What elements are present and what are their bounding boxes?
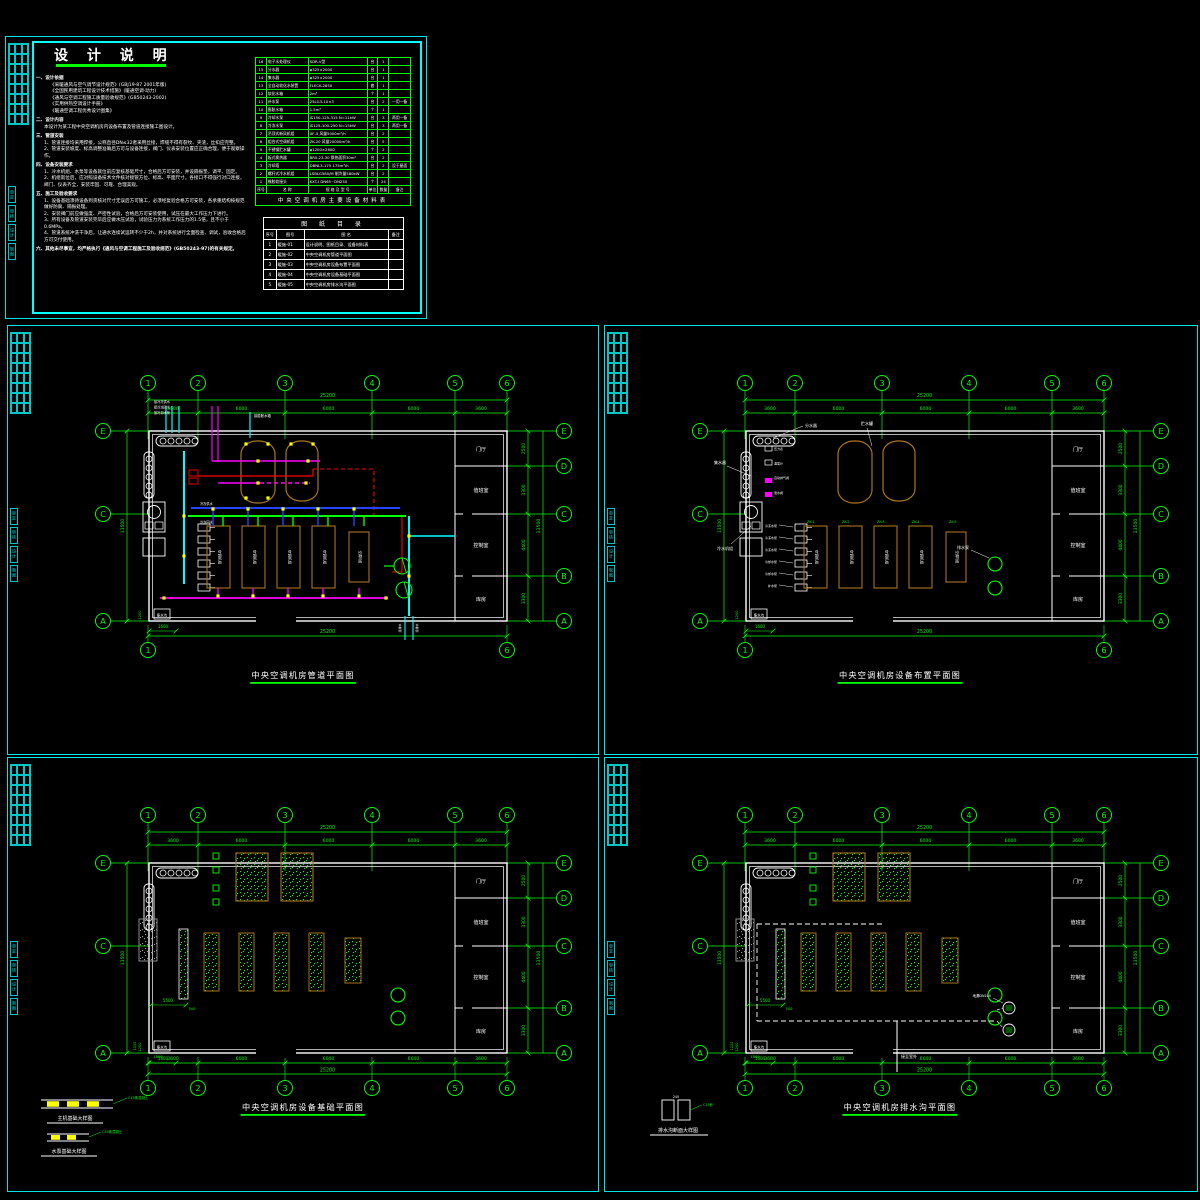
table-cell <box>389 82 411 90</box>
notes-title: 设 计 说 明 <box>54 45 274 65</box>
grid-bubble-label: 1 <box>145 1084 150 1093</box>
pump-base <box>213 899 219 905</box>
collector-port <box>757 438 763 444</box>
notes-line: 本设计为某工程中央空调机房内设备布置及管道连接施工图设计。 <box>36 125 248 132</box>
title-strip-grid <box>8 43 29 125</box>
equipment-material-table: 16电子水处理仪SDR-Ⅴ型台115分水器φ325×2000台114集水器φ32… <box>255 57 411 206</box>
strip-cell <box>24 785 30 795</box>
plan-title-underline <box>250 682 356 684</box>
grid-bubble-label: 5 <box>1049 379 1054 388</box>
dim-label: 3300 <box>1118 1025 1124 1036</box>
grid-bubble-label: 6 <box>1101 646 1106 655</box>
table-cell: 2 <box>378 154 389 162</box>
grid-bubble-label: E <box>1158 427 1163 436</box>
table-cell: 板式换热器 <box>266 154 308 162</box>
strip-cell <box>24 805 30 815</box>
strip-label: 审定 <box>607 508 615 525</box>
chiller-unit <box>740 502 762 532</box>
table-cell: 螺杆式冷水机组 <box>266 170 308 178</box>
table-cell: 冷却水泵 <box>266 114 308 122</box>
table-cell: 2 <box>378 98 389 106</box>
dim-label: 2500 <box>521 875 527 886</box>
grid-bubble-label: C <box>561 942 567 951</box>
table-cell: 14 <box>256 74 267 82</box>
pump-unit <box>795 548 807 555</box>
title-strip-grid <box>10 764 31 846</box>
dim-label: 5500 <box>760 998 771 1003</box>
grid-bubble-label: 1 <box>145 646 150 655</box>
title-strip-grid <box>10 332 31 414</box>
trench-wall <box>678 1100 690 1120</box>
strip-label: 审定 <box>607 941 615 958</box>
grid-bubble-label: 1 <box>145 379 150 388</box>
table-cell: 1 <box>378 90 389 98</box>
strip-cell <box>621 333 627 343</box>
table-cell <box>389 154 411 162</box>
dim-total-label: 25200 <box>917 825 932 831</box>
sump-label: 集水坑 <box>157 613 168 618</box>
grid-bubble-label: D <box>1158 462 1164 471</box>
strip-cell <box>24 383 30 393</box>
table-cell <box>388 250 403 260</box>
dim-total-label: 13500 <box>536 951 542 966</box>
grid-bubble-label: 2 <box>195 379 200 388</box>
valve-mark <box>289 442 292 445</box>
detail-hatch <box>47 1101 59 1107</box>
collector-port <box>773 870 779 876</box>
room-label: 库房 <box>1073 1028 1083 1035</box>
strip-cell <box>22 44 28 54</box>
hot-pipe-fitting <box>189 470 198 476</box>
valve-mark <box>304 481 307 484</box>
grid-bubble-label: 4 <box>369 811 374 820</box>
table-cell <box>389 74 411 82</box>
pump-unit <box>795 536 807 543</box>
dim-label: 3600 <box>167 838 179 844</box>
dim-label: 3600 <box>1072 838 1084 844</box>
table-cell: 暖施-05 <box>276 280 304 290</box>
dim-label: 500 <box>786 1007 794 1011</box>
pump-row-label: 补水泵 <box>768 583 777 588</box>
equip-label: 贮水罐 <box>861 420 873 426</box>
pump-unit <box>198 572 210 579</box>
pump-circle <box>988 581 1002 595</box>
table-cell: 1 <box>378 106 389 114</box>
drawing-list-table: 图 纸 目 录序号图号图 名备注1暖施-01设计说明、图纸目录、设备材料表2暖施… <box>263 217 404 290</box>
grid-bubble-label: A <box>1158 617 1164 626</box>
room-label: 控制室 <box>1070 974 1085 981</box>
dim-label: 3600 <box>167 1056 179 1062</box>
table-cell: 3 <box>256 162 267 170</box>
table-cell: 2 <box>264 250 277 260</box>
sheet-title-strip: 审定审核设计制图 <box>8 43 29 312</box>
grid-bubble-label: A <box>697 617 703 626</box>
strip-cell <box>22 94 28 104</box>
dim-total-label: 25200 <box>917 1068 932 1074</box>
sheet-title-strip: 审定审核设计制图 <box>10 332 31 748</box>
table-cell: 12 <box>256 90 267 98</box>
table-cell: 中央空调机房设备布置平面图 <box>304 260 388 270</box>
strip-cell <box>621 835 627 845</box>
strip-cell <box>22 64 28 74</box>
strip-label: 审核 <box>10 527 18 544</box>
riser-label: 接冷却水管 <box>154 410 170 415</box>
instrument-label: 自动排气阀 <box>774 475 789 480</box>
strip-label: 设计 <box>8 224 16 241</box>
grid-bubble-label: 1 <box>742 646 747 655</box>
detail-note: C15砼 <box>703 1102 714 1107</box>
dim-total-label: 13500 <box>536 519 542 534</box>
grid-bubble-label: 2 <box>195 811 200 820</box>
table-cell: 个 <box>367 146 378 154</box>
plan-title: 中央空调机房设备基础平面图 <box>242 1102 364 1112</box>
main-tag: 冷冻回水 <box>200 520 214 525</box>
grid-bubble-label: 6 <box>504 1084 509 1093</box>
table-cell: 中央空调机房排水沟平面图 <box>304 280 388 290</box>
strip-cell <box>24 393 30 403</box>
sheet-design-notes: 设 计 说 明 一、设计依据《采暖通风与空气调节设计规范》(GBJ19-87 2… <box>5 36 427 319</box>
drainage-plan-svg: 1234563600600060006000360025200EDCBA2500… <box>605 758 1197 1191</box>
table-cell: XF-5 风量5000m³/h <box>308 130 367 138</box>
table-cell: 5 <box>264 280 277 290</box>
ahu-label: 空调机组 <box>850 550 855 565</box>
leader-line <box>779 549 793 551</box>
table-cell: 台 <box>367 98 378 106</box>
riser-label: 接冷冻回水 <box>154 404 171 409</box>
table-header-cell: 图 名 <box>304 230 388 240</box>
table-cell: 冷却塔 <box>266 162 308 170</box>
strip-cell <box>621 785 627 795</box>
grid-bubble-label: A <box>697 1049 703 1058</box>
ahu-label: 空调机组 <box>253 550 258 565</box>
dim-total-label: 25200 <box>320 393 335 399</box>
dim-label: 1600 <box>755 624 766 629</box>
table-cell: 套 <box>367 82 378 90</box>
table-cell: 一用一备 <box>389 98 411 106</box>
dim-label: 3300 <box>521 916 527 927</box>
dim-label: 3300 <box>1118 916 1124 927</box>
instrument-label: 泄水阀 <box>774 490 783 495</box>
room-label: 值班室 <box>473 487 488 494</box>
strip-label: 制图 <box>607 565 615 582</box>
pump-circle <box>988 557 1002 571</box>
dim-label: 3600 <box>1072 1056 1084 1062</box>
pump-row-label: 冷冻水泵 <box>765 523 777 528</box>
sheet-foundation-plan: 1234563600600060006000360025200EDCBA2500… <box>7 757 599 1192</box>
tank-foundation <box>281 853 313 901</box>
notes-line: 《暖通空调工程优秀设计图集》 <box>36 109 248 116</box>
table-cell: IS150-125-315 N=11kW <box>308 114 367 122</box>
leader-line <box>971 550 989 558</box>
valve-mark <box>281 507 284 510</box>
grid-bubble-label: 5 <box>1049 1084 1054 1093</box>
ahu-foundation <box>801 933 816 991</box>
grid-bubble-label: A <box>100 617 106 626</box>
door-opening <box>256 1049 296 1058</box>
grid-bubble-label: D <box>1158 894 1164 903</box>
table-cell: 2 <box>256 170 267 178</box>
room-label: 值班室 <box>473 919 488 926</box>
table-cell: 台 <box>367 74 378 82</box>
main-tag: 冷冻供水 <box>200 501 214 506</box>
strip-label: 审定 <box>10 941 18 958</box>
table-cell: 中央空调机房管道平面图 <box>304 250 388 260</box>
grid-bubble-label: C <box>1158 510 1164 519</box>
grid-bubble-label: C <box>1158 942 1164 951</box>
room-label: 库房 <box>476 1028 486 1035</box>
grid-bubble-label: 6 <box>1101 379 1106 388</box>
room-label: 值班室 <box>1070 487 1085 494</box>
grid-bubble-label: A <box>1158 1049 1164 1058</box>
table-cell: 7 <box>256 130 267 138</box>
strip-label: 制图 <box>10 998 18 1015</box>
ahu-tag: ZK-1 <box>807 520 815 524</box>
leader-line <box>690 1105 702 1110</box>
instrument-tag-magenta <box>765 478 772 483</box>
plan-title: 中央空调机房管道平面图 <box>251 670 354 680</box>
strip-cell <box>621 363 627 373</box>
table-cell: 两用一备 <box>389 122 411 130</box>
plan-title: 中央空调机房设备布置平面图 <box>839 670 961 680</box>
collector-port <box>757 870 763 876</box>
hot-pipe-fitting <box>189 478 198 484</box>
detail-note: C15素混凝土 <box>128 1095 149 1100</box>
valve-mark <box>256 459 259 462</box>
table-cell: 台 <box>367 66 378 74</box>
dim-label: 2500 <box>521 443 527 454</box>
table-cell <box>389 138 411 146</box>
table-cell <box>389 178 411 186</box>
storage-tank <box>241 441 275 503</box>
leader-line <box>779 525 793 527</box>
pump-row-label: 冷冻水泵 <box>765 547 777 552</box>
table-header-cell: 序号 <box>256 186 267 194</box>
strip-cell <box>24 765 30 775</box>
dim-label: 6000 <box>1005 838 1017 844</box>
pump-circle <box>391 988 405 1002</box>
dim-label: 6000 <box>323 838 335 844</box>
table-cell: BR0.23-30 换热面积30m² <box>308 154 367 162</box>
ahu-foundation <box>239 933 254 991</box>
strip-cell <box>24 825 30 835</box>
dim-total-label: 13500 <box>717 951 723 965</box>
table-header-cell: 备注 <box>389 186 411 194</box>
sheet-title-strip: 审定审核设计制图 <box>607 764 628 1185</box>
strip-cell <box>621 815 627 825</box>
trench-detail: 240C15砼排水沟断面大样图 <box>650 1095 714 1136</box>
equip-label: 分水器 <box>805 422 817 428</box>
dim-label: 1800 <box>750 1054 760 1059</box>
grid-bubble-label: 2 <box>792 811 797 820</box>
door-opening <box>256 617 296 626</box>
grid-bubble-label: 4 <box>966 1084 971 1093</box>
dim-total-label: 25200 <box>320 1068 335 1074</box>
leader-line <box>779 561 793 563</box>
valve-mark <box>244 442 247 445</box>
table-cell: 集水器 <box>266 74 308 82</box>
grid-bubble-label: A <box>561 617 567 626</box>
equipment-plan-svg: 1234563600600060006000360025200EDCBA2500… <box>605 326 1197 754</box>
dim-label: 3600 <box>475 406 487 412</box>
dim-total-label: 13500 <box>120 951 126 965</box>
dim-label: 2500 <box>1118 443 1124 454</box>
grid-bubble-label: B <box>1158 1004 1164 1013</box>
dim-label: 1200 <box>133 1042 137 1051</box>
dim-label: 6000 <box>236 406 248 412</box>
strip-cell <box>24 353 30 363</box>
grid-bubble-label: B <box>561 1004 567 1013</box>
equipment-table-caption: 中央空调机房主要设备材料表 <box>256 194 411 206</box>
dim-label: 3300 <box>521 593 527 604</box>
strip-cell <box>621 795 627 805</box>
dim-label: 6000 <box>833 1056 845 1062</box>
dim-total-label: 13500 <box>717 519 723 533</box>
strip-cell <box>621 403 627 413</box>
dim-label: 1200 <box>730 1042 734 1051</box>
table-cell: DBNL3-175 175m³/h <box>308 162 367 170</box>
grid-bubble-label: E <box>697 859 702 868</box>
dim-label: 6000 <box>920 1056 932 1062</box>
table-cell <box>389 58 411 66</box>
valve-mark <box>407 534 410 537</box>
dim-label: 6000 <box>408 406 420 412</box>
strip-cell <box>621 383 627 393</box>
table-cell: 6 <box>256 138 267 146</box>
piping-plan-svg: 1234563600600060006000360025200EDCBA2500… <box>8 326 598 754</box>
table-cell: 2 <box>378 146 389 154</box>
strip-label: 设计 <box>10 979 18 996</box>
table-cell <box>389 90 411 98</box>
collector-port <box>773 438 779 444</box>
grid-bubble-label: 2 <box>792 379 797 388</box>
table-header-cell: 备注 <box>388 230 403 240</box>
title-strip-grid <box>607 332 628 414</box>
strip-cell <box>24 333 30 343</box>
sheet-title-strip: 审定审核设计制图 <box>10 764 31 1185</box>
table-cell: 个 <box>367 178 378 186</box>
grid-bubble-label: E <box>697 427 702 436</box>
valve-mark <box>182 554 185 557</box>
room-label: 库房 <box>476 596 486 603</box>
collector-port <box>184 438 190 444</box>
valve-mark <box>266 496 269 499</box>
table-cell: 全自动软化水装置 <box>266 82 308 90</box>
table-cell: 设于屋面 <box>389 162 411 170</box>
plan-title-underline <box>241 1114 366 1116</box>
table-cell: 15 <box>256 66 267 74</box>
dim-label: 1200 <box>138 610 142 620</box>
strip-label: 制图 <box>10 565 18 582</box>
grid-bubble-label: 5 <box>1049 811 1054 820</box>
dim-label: 3600 <box>1072 406 1084 412</box>
outlet-label: 接至室外 <box>901 1053 917 1059</box>
grid-bubble-label: B <box>561 572 567 581</box>
plan-title: 中央空调机房排水沟平面图 <box>844 1102 957 1112</box>
strip-cell <box>22 114 28 124</box>
grid-bubble-label: 2 <box>195 1084 200 1093</box>
grid-bubble-label: C <box>697 510 703 519</box>
strip-label: 设计 <box>607 979 615 996</box>
pump-unit <box>795 524 807 531</box>
detail-title: 水泵基础大样图 <box>51 1148 86 1155</box>
plan-title-underline <box>842 1114 957 1116</box>
table-header-cell: 单位 <box>367 186 378 194</box>
drain-label: 接排水 <box>414 623 419 632</box>
sheet-title-strip: 审定审核设计制图 <box>607 332 628 748</box>
table-cell: 1 <box>378 58 389 66</box>
collector-port <box>192 870 198 876</box>
table-cell <box>388 280 403 290</box>
detail-note: C15素混凝土 <box>102 1129 123 1134</box>
ahu-foundation <box>309 933 324 991</box>
ahu-label: 空调机组 <box>218 550 223 565</box>
collector-port <box>176 438 182 444</box>
grid-bubble-label: 3 <box>879 1084 884 1093</box>
table-cell: ZK-20 风量20000m³/h <box>308 138 367 146</box>
dim-label: 3600 <box>764 1056 776 1062</box>
table-cell: 25LG3-10×3 <box>308 98 367 106</box>
room-label: 库房 <box>1073 596 1083 603</box>
grid-bubble-label: 1 <box>742 379 747 388</box>
dim-label: 3600 <box>764 838 776 844</box>
table-cell: φ325×2000 <box>308 66 367 74</box>
detail-title: 主机基础大样图 <box>57 1115 92 1122</box>
table-cell: KXT-Ⅰ DN65~DN250 <box>308 178 367 186</box>
strip-label: 审定 <box>8 186 16 203</box>
leader-line <box>731 526 751 544</box>
grid-bubble-label: 3 <box>282 811 287 820</box>
valve-mark <box>407 574 410 577</box>
ahu-tag: ZK-2 <box>842 520 850 524</box>
table-cell: 不锈钢贮水罐 <box>266 146 308 154</box>
equip-label: 排水泵 <box>957 544 969 550</box>
valve-mark <box>244 496 247 499</box>
valve-mark <box>316 507 319 510</box>
table-cell: 2m³ <box>308 90 367 98</box>
grid-bubble-label: C <box>697 942 703 951</box>
collector-port <box>160 870 166 876</box>
valve-mark <box>306 459 309 462</box>
drain-label: 地漏DN100 <box>973 993 991 998</box>
room-label: 控制室 <box>473 974 488 981</box>
ahu-label: 空调机组 <box>920 550 925 565</box>
ahu-label: 空调机组 <box>955 551 960 565</box>
detail-hatch <box>67 1101 79 1107</box>
grid-bubble-label: 4 <box>966 811 971 820</box>
table-cell: 个 <box>367 106 378 114</box>
grid-bubble-label: 1 <box>145 811 150 820</box>
grid-bubble-label: 5 <box>452 379 457 388</box>
table-cell: 4 <box>264 270 277 280</box>
drain-spur <box>997 1008 1003 1010</box>
grid-bubble-label: 6 <box>504 646 509 655</box>
room-label: 门厅 <box>476 446 486 453</box>
collector-port <box>765 870 771 876</box>
table-cell: 1.5m³ <box>308 106 367 114</box>
notes-line: 4、管道系统冲洗干净后，让通水连续试运转不少于2h，并对系统进行全面检查、调试，… <box>36 231 248 244</box>
grid-bubble-label: E <box>100 427 105 436</box>
drain-label: 接排水 <box>397 623 402 632</box>
ahu-label: 空调机组 <box>323 550 328 565</box>
grid-bubble-label: C <box>561 510 567 519</box>
table-cell <box>389 130 411 138</box>
collector-port <box>789 870 795 876</box>
dim-label: 6000 <box>236 838 248 844</box>
valve-mark <box>321 594 324 597</box>
table-cell: 暖施-02 <box>276 250 304 260</box>
valve-mark <box>286 594 289 597</box>
table-cell: 4 <box>256 154 267 162</box>
